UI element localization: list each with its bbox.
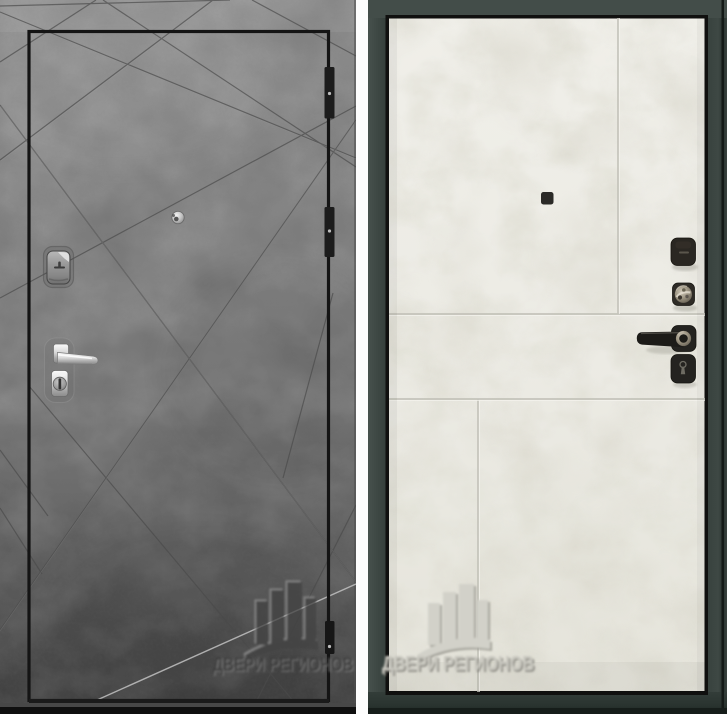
svg-text:ДВЕРИ РЕГИОНОВ: ДВЕРИ РЕГИОНОВ [213,655,354,676]
svg-text:ДВЕРИ РЕГИОНОВ: ДВЕРИ РЕГИОНОВ [382,652,534,675]
